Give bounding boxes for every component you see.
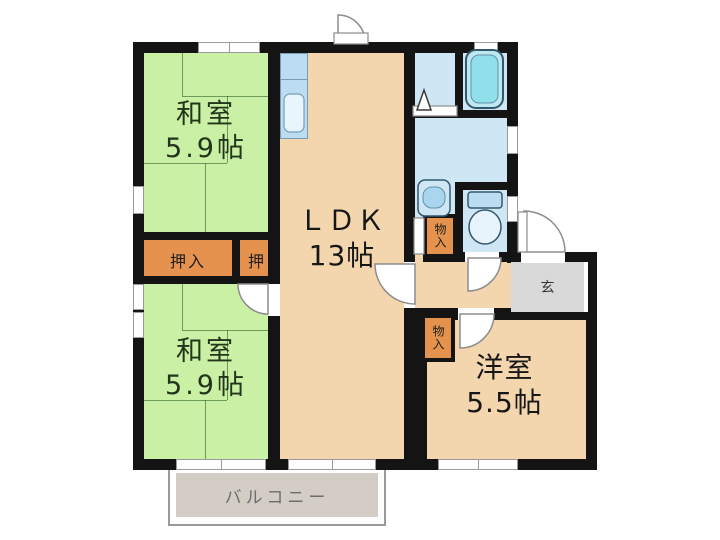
youshitsu-label: 洋室 5.5帖: [421, 350, 588, 420]
window: [507, 196, 518, 222]
washroom-area-extension: [408, 112, 458, 226]
room-name: 和室: [138, 335, 274, 369]
tatami-seam: [182, 278, 183, 330]
window: [474, 42, 498, 53]
washitsu-bottom-label: 和室 5.9帖: [138, 335, 274, 403]
genkan-step: [584, 262, 588, 312]
window: [507, 126, 518, 154]
door-opening: [268, 284, 280, 316]
changing-room-area: [408, 47, 458, 114]
genkan-label: 玄: [541, 277, 555, 297]
kitchen-counter: [280, 53, 308, 139]
wall: [133, 276, 280, 284]
door-opening: [465, 252, 499, 262]
window: [176, 459, 266, 470]
toilet-room-area: [461, 188, 509, 256]
door-opening: [458, 308, 494, 320]
ldk-label: ＬＤＫ 13帖: [272, 203, 412, 273]
monoire-lower-label: 物入: [432, 325, 444, 351]
tatami-seam: [205, 400, 206, 464]
tatami-seam: [182, 96, 274, 97]
room-size: 5.9帖: [138, 132, 274, 166]
room-name: 和室: [138, 98, 274, 132]
room-name: ＬＤＫ: [272, 203, 412, 238]
washitsu-top-label: 和室 5.9帖: [138, 98, 274, 166]
genkan-area: 玄: [511, 262, 584, 312]
door-arc: [334, 15, 368, 44]
bathroom-area: [461, 47, 509, 114]
entrance-door-arc: [518, 211, 565, 252]
window: [198, 42, 260, 53]
window: [288, 459, 376, 470]
wall: [133, 232, 280, 240]
tatami-seam: [205, 163, 206, 237]
room-size: 13帖: [272, 238, 412, 273]
wall: [455, 42, 463, 116]
oshiire-label: 押入: [138, 248, 238, 272]
room-name: 洋室: [421, 350, 588, 385]
room-size: 5.5帖: [421, 385, 588, 420]
closet-monoire-upper: 物入: [423, 214, 457, 258]
balcony-floor: バルコニー: [176, 473, 378, 517]
balcony: バルコニー: [168, 470, 386, 526]
tatami-seam: [182, 330, 274, 331]
balcony-label: バルコニー: [225, 483, 330, 508]
tatami-seam: [182, 47, 183, 96]
window: [438, 459, 518, 470]
floor-plan: 玄 物入 物入: [0, 0, 720, 540]
room-size: 5.9帖: [138, 369, 274, 403]
oshi-label: 押: [238, 248, 274, 272]
window: [133, 186, 144, 214]
window: [133, 284, 144, 310]
door-opening: [521, 252, 565, 263]
monoire-upper-label: 物入: [434, 223, 446, 249]
